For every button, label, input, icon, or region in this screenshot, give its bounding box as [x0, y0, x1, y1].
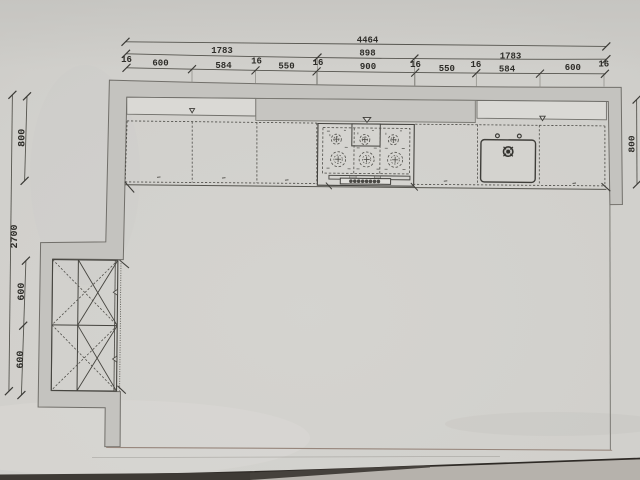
- svg-text:600: 600: [16, 351, 27, 369]
- svg-text:800: 800: [18, 129, 29, 147]
- svg-text:16: 16: [251, 57, 262, 67]
- svg-text:4464: 4464: [357, 36, 379, 46]
- svg-text:550: 550: [439, 64, 455, 74]
- svg-text:16: 16: [470, 60, 481, 70]
- svg-text:584: 584: [499, 64, 516, 74]
- svg-text:600: 600: [152, 59, 168, 69]
- svg-text:600: 600: [565, 63, 581, 73]
- svg-text:900: 900: [360, 62, 376, 72]
- svg-text:16: 16: [313, 58, 324, 68]
- svg-text:600: 600: [17, 283, 28, 301]
- svg-text:800: 800: [627, 135, 638, 152]
- svg-text:1783: 1783: [211, 46, 233, 56]
- svg-text:1783: 1783: [500, 51, 522, 61]
- svg-text:898: 898: [359, 49, 375, 59]
- svg-text:550: 550: [278, 62, 294, 72]
- svg-text:16: 16: [410, 60, 421, 70]
- svg-text:2700: 2700: [10, 224, 21, 248]
- svg-text:16: 16: [121, 55, 132, 65]
- svg-text:16: 16: [598, 60, 609, 70]
- svg-text:584: 584: [215, 61, 232, 71]
